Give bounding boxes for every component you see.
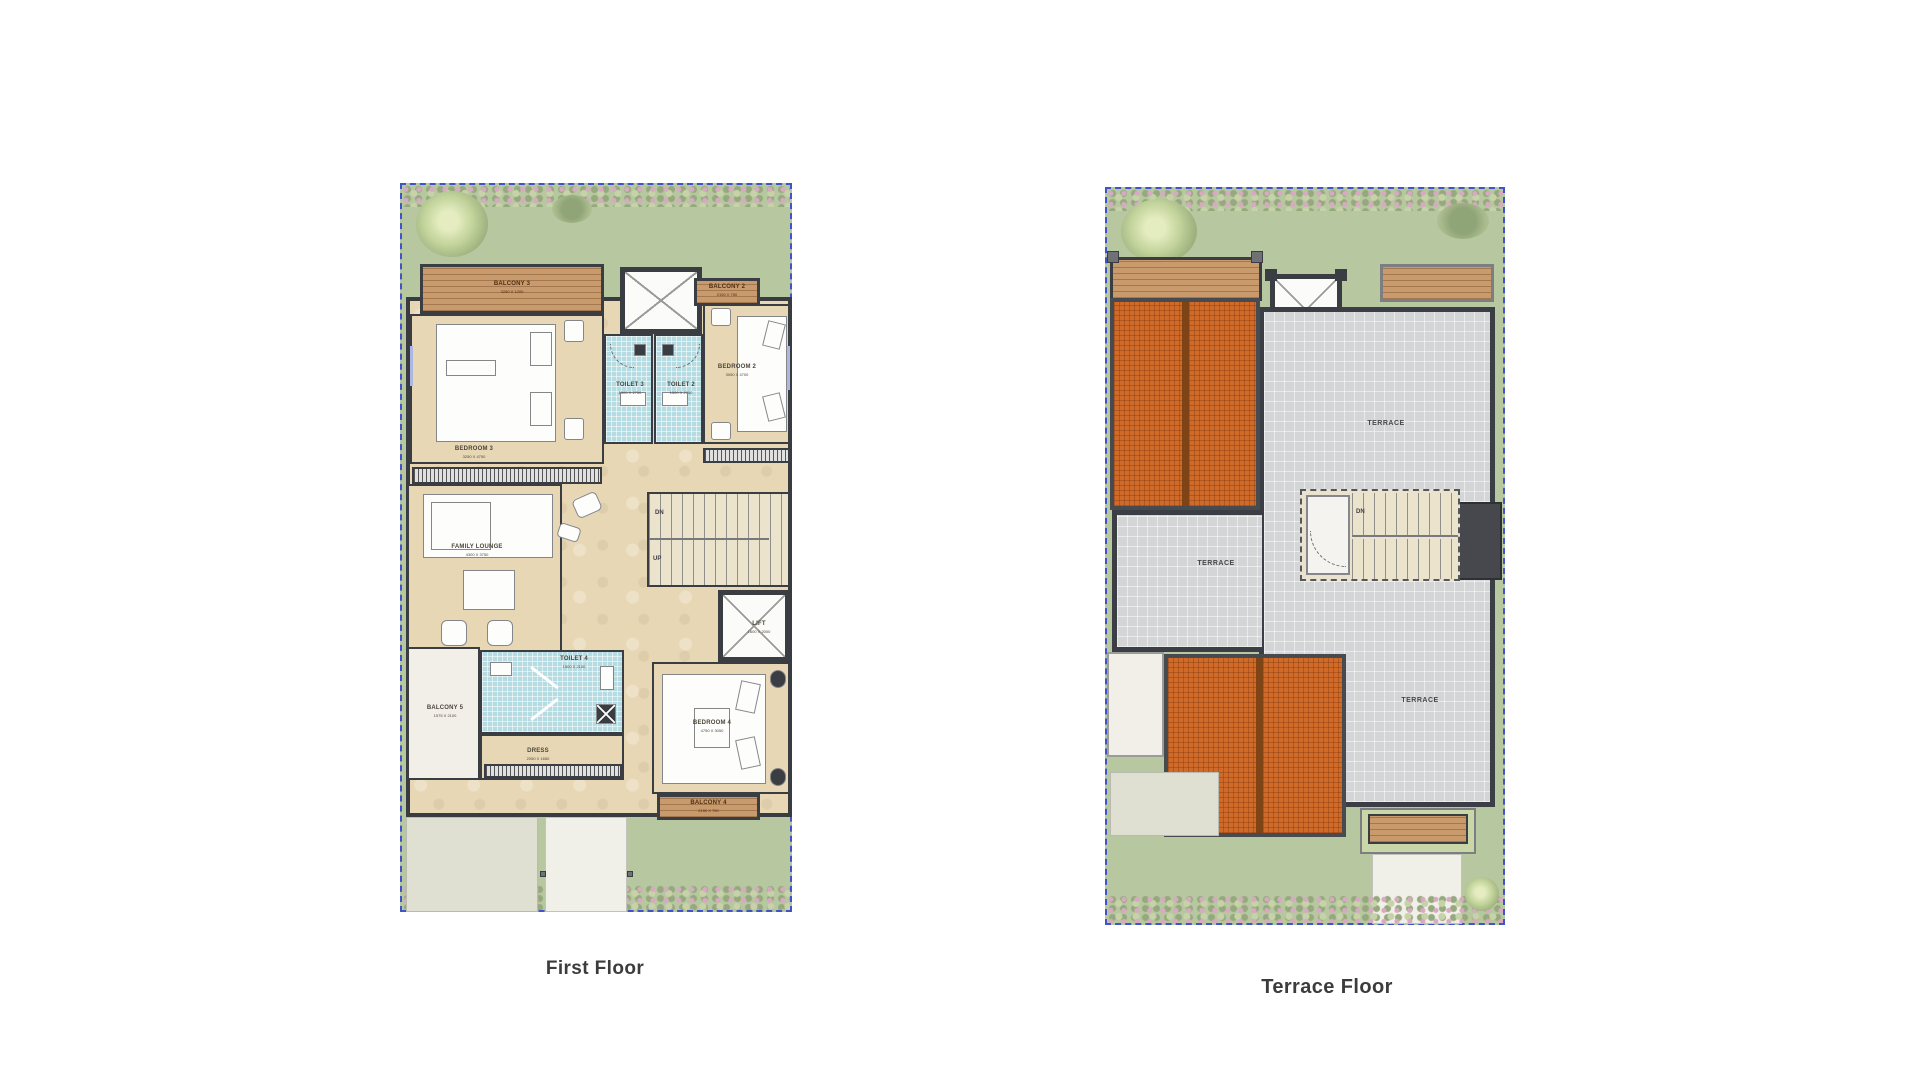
wardrobe [412,467,602,484]
room-label: BALCONY 3 3280 X 1200 [494,281,530,295]
terrace-floor-title: Terrace Floor [1217,976,1437,999]
bush-icon [552,195,592,223]
stair-dn-label: DN [655,510,664,516]
terrace-floor-plan: DN TERRACE TERRACE TERRACE [1105,187,1505,925]
balcony-2: BALCONY 2 2150 X 750 [694,278,760,306]
first-floor-title: First Floor [485,958,705,980]
room-name: TERRACE [1367,420,1404,427]
room-name: TOILET 2 [667,382,695,388]
roof-ridge [1182,302,1189,506]
terrace-label: TERRACE [1367,420,1404,427]
room-name: BEDROOM 4 [693,720,731,726]
elevator-shaft [620,267,702,334]
room-label: TOILET 3 1500 X 2750 [616,382,644,396]
bedroom-2: BEDROOM 2 3050 X 4700 [703,304,790,444]
room-label: BEDROOM 2 3050 X 4700 [718,364,756,378]
bush-icon [1437,203,1489,239]
bathtub [532,666,572,722]
nightstand [770,670,786,688]
driveway [545,817,627,912]
terrace-label: TERRACE [1401,697,1438,704]
garden-path [406,817,538,912]
lift: LIFT 1600 X 2000 [718,590,790,662]
washbasin [662,344,674,356]
room-name: BEDROOM 3 [455,446,493,452]
shaft-post [1265,269,1277,281]
terrace-label: TERRACE [1197,560,1234,567]
wardrobe [703,448,790,463]
room-name: LIFT [752,621,765,627]
door-swing [676,344,700,368]
room-dim: 1600 X 2000 [748,628,771,635]
room-name: BALCONY 3 [494,281,530,287]
stool [441,620,467,646]
garden-path [1110,772,1219,836]
stair-up-label: UP [653,556,661,562]
terrace-deck [1110,257,1262,301]
terrace-deck [1368,814,1468,844]
washbasin [634,344,646,356]
nightstand [564,320,584,342]
balcony-below [1107,652,1164,757]
room-dim: 2050 X 1650 [527,755,550,762]
roof-ridge [1256,658,1263,833]
room-dim: 1500 X 2750 [616,389,644,396]
balcony-3: BALCONY 3 3280 X 1200 [420,264,604,314]
pergola-post [1251,251,1263,263]
staircase: DN [1300,489,1460,581]
staircase: DN UP [647,492,790,587]
room-name: BALCONY 5 [427,705,463,711]
sofa-seat [431,502,491,550]
room-dim: 3050 X 4700 [718,371,756,378]
utility-block [1454,502,1502,580]
room-dim: 1500 X 2750 [667,389,695,396]
tree-icon [1121,199,1197,263]
door-swing [610,344,634,368]
room-label: BALCONY 5 1575 X 2100 [427,705,463,719]
stair-treads [1352,539,1458,579]
wardrobe [484,764,622,778]
stair-rail [649,538,769,540]
nightstand [564,418,584,440]
room-dim: 4750 X 3050 [693,727,731,734]
room-label: BALCONY 4 2150 X 750 [690,800,726,814]
terrace-area-left [1112,510,1262,652]
washbasin [490,662,512,676]
room-label: TOILET 2 1500 X 2750 [667,382,695,396]
room-dim: 2150 X 750 [690,807,726,814]
family-lounge: FAMILY LOUNGE 4300 X 3750 [407,484,562,662]
sloped-roof [1110,298,1260,510]
window-marker [410,346,413,386]
room-dim: 3280 X 1200 [494,288,530,295]
window-marker [787,346,790,390]
shaft-post [1335,269,1347,281]
bed-pillow [530,332,552,366]
stair-dn-label: DN [1356,509,1365,515]
hedge-bottom [1107,895,1503,923]
room-dim: 2150 X 750 [709,291,745,298]
room-label: TOILET 4 1500 X 2100 [560,656,588,670]
room-dim: 1575 X 2100 [427,712,463,719]
room-name: BEDROOM 2 [718,364,756,370]
room-name: TOILET 4 [560,656,588,662]
nightstand [711,308,731,326]
headboard [446,360,496,376]
toilet-4: TOILET 4 1500 X 2100 [480,650,624,734]
nightstand [711,422,731,440]
plant-icon [1465,877,1499,911]
room-name: FAMILY LOUNGE [451,544,502,550]
terrace-deck [1380,264,1494,302]
coffee-table [463,570,515,610]
room-label: LIFT 1600 X 2000 [748,621,771,635]
balcony-4: BALCONY 4 2150 X 750 [657,794,760,820]
room-label: DRESS 2050 X 1650 [527,748,550,762]
room-name: DRESS [527,748,549,754]
room-label: BALCONY 2 2150 X 750 [709,284,745,298]
room-label: BEDROOM 3 3250 X 4750 [455,446,493,460]
room-name: TOILET 3 [616,382,644,388]
stair-rail [1352,535,1458,537]
room-name: TERRACE [1401,697,1438,704]
room-name: BALCONY 4 [690,800,726,806]
first-floor-plan: BALCONY 3 3280 X 1200 BALCONY 2 2150 X 7… [400,183,792,912]
stair-treads [1352,493,1458,535]
room-dim: 3250 X 4750 [455,453,493,460]
gate-post [627,871,633,877]
bedroom-4: BEDROOM 4 4750 X 3050 [652,662,790,794]
nightstand [770,768,786,786]
wc [600,666,614,690]
balcony-5: BALCONY 5 1575 X 2100 [407,647,480,780]
pergola-post [1107,251,1119,263]
shower [596,704,616,724]
room-name: TERRACE [1197,560,1234,567]
stool [487,620,513,646]
gate-post [540,871,546,877]
toilet-3: TOILET 3 1500 X 2750 [604,334,653,444]
bedroom-3: BEDROOM 3 3250 X 4750 [410,314,604,464]
dress-room: DRESS 2050 X 1650 [480,734,624,780]
room-name: BALCONY 2 [709,284,745,290]
tree-icon [416,191,488,257]
room-dim: 4300 X 3750 [451,551,502,558]
room-dim: 1500 X 2100 [560,663,588,670]
room-label: BEDROOM 4 4750 X 3050 [693,720,731,734]
room-label: FAMILY LOUNGE 4300 X 3750 [451,544,502,558]
toilet-2: TOILET 2 1500 X 2750 [654,334,703,444]
bed-pillow [530,392,552,426]
